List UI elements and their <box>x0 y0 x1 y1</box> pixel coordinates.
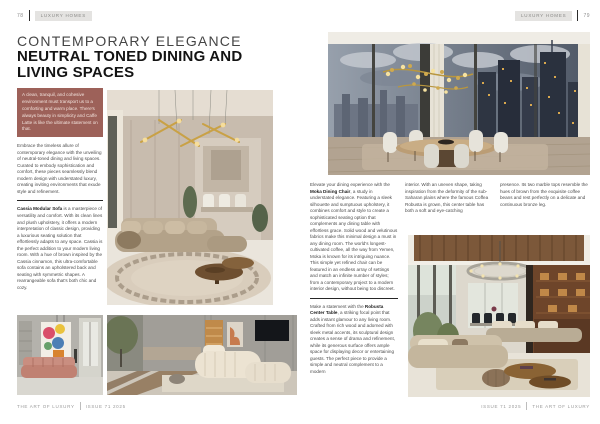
right-page-number: 79 <box>583 13 590 19</box>
right-column-2: interior. With an uneven shape, taking i… <box>405 182 493 215</box>
left-text-column: A clean, tranquil, and cohesive environm… <box>17 88 103 312</box>
footer-divider <box>526 402 527 410</box>
right-page-folio: LUXURY HOMES 79 <box>515 10 590 21</box>
article-kicker: CONTEMPORARY ELEGANCE <box>17 33 242 49</box>
left-page-footer: THE ART OF LUXURY ISSUE 71 2025 <box>17 402 126 410</box>
lounge-photo <box>408 235 590 397</box>
right-page-footer: ISSUE 71 2025 THE ART OF LUXURY <box>481 402 590 410</box>
right-column-1: Elevate your dining experience with the … <box>310 182 398 410</box>
divider <box>17 200 103 201</box>
moka-paragraph: Elevate your dining experience with the … <box>310 182 398 293</box>
left-page-number: 78 <box>17 13 24 19</box>
intro-paragraph: Embrace the timeless allure of contempor… <box>17 143 103 195</box>
city-dining-photo <box>328 32 590 175</box>
divider <box>310 298 398 299</box>
footer-magazine-name: THE ART OF LUXURY <box>17 404 75 409</box>
right-column-3: presence. Its two marble tops resemble t… <box>500 182 588 208</box>
section-badge: LUXURY HOMES <box>35 11 92 21</box>
footer-magazine-name: THE ART OF LUXURY <box>532 404 590 409</box>
right-page: LUXURY HOMES 79 <box>300 0 600 424</box>
footer-issue: ISSUE 71 2025 <box>481 404 521 409</box>
robusta-continued-paragraph: interior. With an uneven shape, taking i… <box>405 182 493 215</box>
footer-divider <box>80 402 81 410</box>
footer-issue: ISSUE 71 2025 <box>86 404 126 409</box>
left-page: 78 LUXURY HOMES CONTEMPORARY ELEGANCE NE… <box>0 0 300 424</box>
folio-divider <box>29 10 30 21</box>
living-room-photo <box>107 90 273 305</box>
section-badge: LUXURY HOMES <box>515 11 572 21</box>
magazine-spread: 78 LUXURY HOMES CONTEMPORARY ELEGANCE NE… <box>0 0 600 424</box>
robusta-ending-paragraph: presence. Its two marble tops resemble t… <box>500 182 588 208</box>
artwork-room-photo <box>17 315 103 395</box>
moka-product-name: Moka Dining Chair <box>310 189 350 194</box>
left-page-folio: 78 LUXURY HOMES <box>17 10 92 21</box>
robusta-paragraph: Make a statement with the Robusta Center… <box>310 304 398 376</box>
article-headline: NEUTRAL TONED DINING AND LIVING SPACES <box>17 49 285 81</box>
cassia-paragraph: Cassia Modular Sofa is a masterpiece of … <box>17 206 103 291</box>
cream-sofa-photo <box>107 315 297 395</box>
folio-divider <box>577 10 578 21</box>
intro-quote-box: A clean, tranquil, and cohesive environm… <box>17 88 103 137</box>
cassia-product-name: Cassia Modular Sofa <box>17 206 62 211</box>
